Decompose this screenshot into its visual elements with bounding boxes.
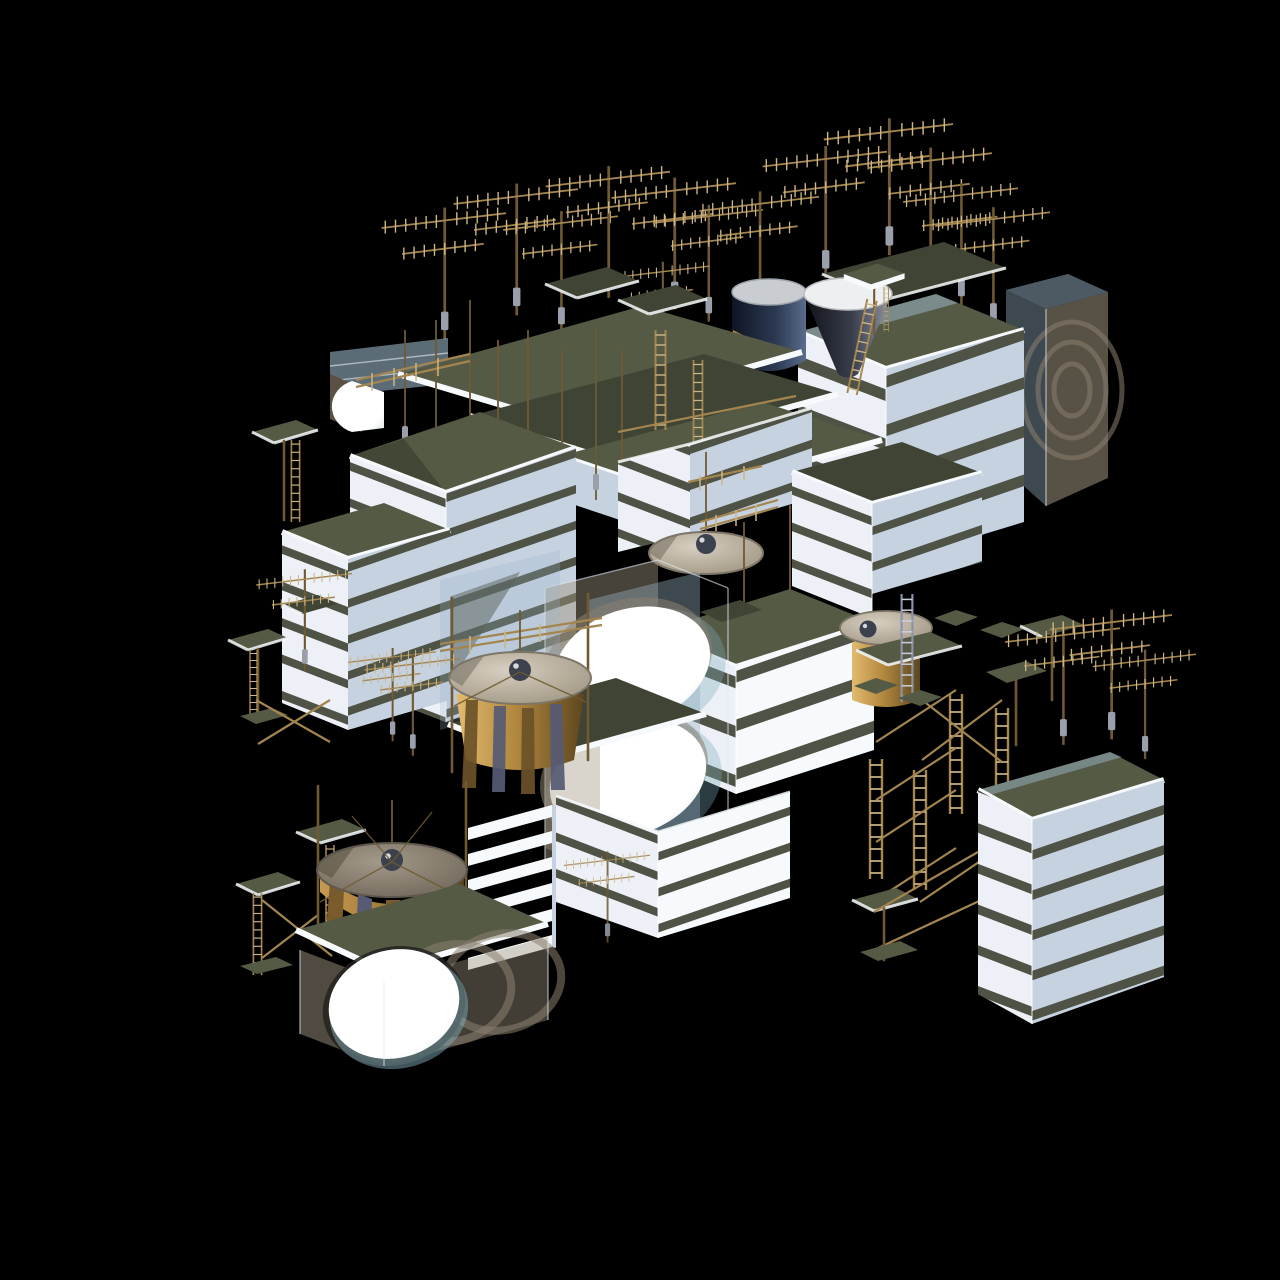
truss-leg	[870, 759, 882, 879]
bottom-left-complex	[236, 782, 572, 1084]
3d-render-scene	[0, 0, 1280, 1280]
aerial-antenna	[1093, 650, 1196, 760]
building-mid-right	[792, 442, 982, 618]
truss-leg	[950, 694, 962, 814]
aerial-antenna	[382, 208, 506, 340]
aerial-antenna	[824, 118, 953, 255]
scene-canvas	[0, 0, 1280, 1280]
aerial-antenna	[1005, 623, 1120, 745]
